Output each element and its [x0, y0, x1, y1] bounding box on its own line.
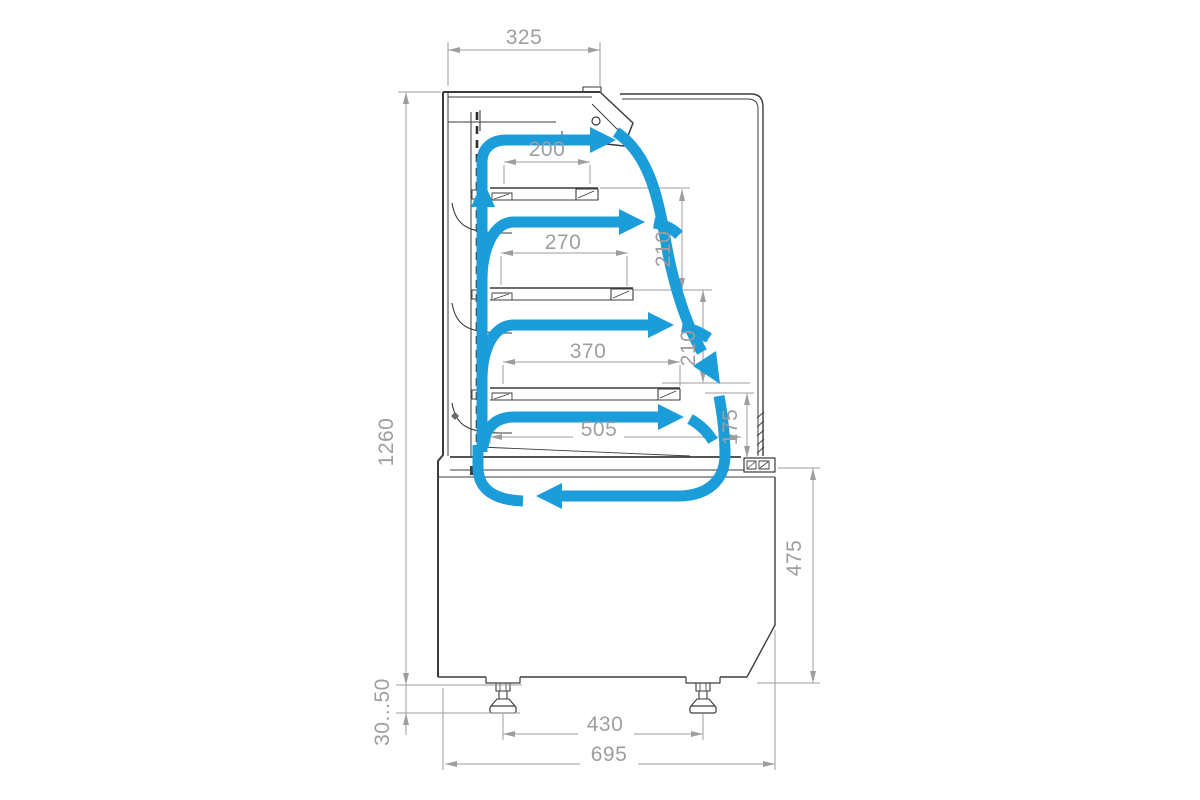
foot-right	[686, 677, 720, 713]
dim-shelf2-label: 270	[545, 231, 582, 254]
airflow-arrow-shelf2	[619, 209, 645, 235]
airflow-arrow-riser-up	[471, 180, 495, 207]
dim-base-height-label: 475	[783, 540, 806, 577]
airflow-arrow-shelf3	[648, 312, 674, 338]
glass-ledge	[744, 458, 775, 472]
canopy-underside	[448, 110, 556, 131]
dim-gap3-label: 175	[719, 409, 742, 446]
lower-cabinet-right	[747, 477, 775, 677]
dim-total-depth-label: 695	[591, 743, 628, 766]
dim-foot-range-label: 30...50	[371, 678, 394, 746]
technical-drawing-page: 325 200 270 370 505 210 210 175 1260 475…	[0, 0, 1200, 800]
glass-ledge-hatch	[748, 462, 768, 468]
dim-shelf3-label: 370	[570, 340, 607, 363]
deck-liner	[480, 447, 690, 456]
foot-left	[486, 677, 520, 713]
dim-foot-spacing-label: 430	[587, 713, 624, 736]
glass-outer	[620, 94, 763, 456]
dim-top-depth-label: 325	[506, 26, 543, 49]
airflow-arrow-deck	[658, 404, 684, 430]
dim-370-lines	[503, 362, 680, 386]
airflow-arrow-return-left	[536, 483, 562, 509]
dimension-arrowheads	[403, 47, 816, 767]
airflow-merge-stub-4	[690, 419, 713, 441]
dim-gap1-label: 210	[652, 231, 675, 268]
dim-shelf1-label: 200	[529, 138, 566, 161]
dim-base-shelf-label: 505	[581, 418, 618, 441]
airflow-arrow-shelf1	[590, 127, 616, 153]
dim-gap2-label: 210	[677, 330, 700, 367]
dim-270-lines	[501, 253, 628, 286]
dim-total-height-label: 1260	[375, 418, 398, 467]
dim-200-lines	[504, 162, 590, 184]
airflow-return	[553, 396, 725, 496]
canopy-screw	[592, 117, 600, 125]
back-wall-outer	[438, 92, 443, 677]
airflow-bottom-corner	[478, 445, 523, 501]
airflow-back-riser	[482, 140, 592, 452]
display-case-section-drawing: 325 200 270 370 505 210 210 175 1260 475…	[0, 0, 1200, 800]
